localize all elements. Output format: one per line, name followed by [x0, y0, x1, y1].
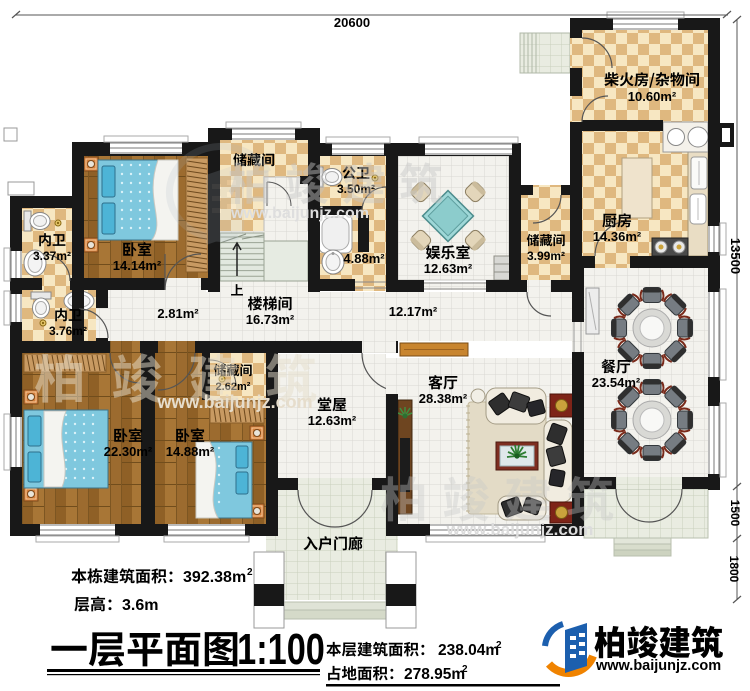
svg-text:23.54m²: 23.54m²: [592, 375, 641, 390]
svg-text:1500: 1500: [728, 500, 742, 527]
svg-text:14.14m²: 14.14m²: [113, 258, 162, 273]
svg-text:1800: 1800: [727, 556, 741, 583]
svg-text:3.6m: 3.6m: [122, 597, 158, 614]
svg-text:238.04m: 238.04m: [438, 642, 499, 659]
svg-text:www.baijunjz.com: www.baijunjz.com: [446, 520, 594, 539]
svg-text:12.63m²: 12.63m²: [308, 413, 357, 428]
svg-text:1:100: 1:100: [237, 625, 325, 674]
svg-text:www.baijunjz.com: www.baijunjz.com: [595, 658, 721, 674]
svg-text:22.30m²: 22.30m²: [104, 444, 153, 459]
svg-text:3.37m²: 3.37m²: [33, 249, 71, 263]
svg-text:3.99m²: 3.99m²: [527, 249, 565, 263]
svg-text:2.81m²: 2.81m²: [157, 306, 199, 321]
svg-text:12.17m²: 12.17m²: [389, 304, 438, 319]
svg-text:13500: 13500: [728, 238, 743, 274]
svg-text:10.60m²: 10.60m²: [628, 89, 677, 104]
svg-text:14.88m²: 14.88m²: [166, 444, 215, 459]
svg-text:16.73m²: 16.73m²: [246, 312, 295, 327]
svg-text:www.baijunjz.com: www.baijunjz.com: [156, 392, 312, 412]
svg-text:2: 2: [496, 640, 502, 651]
svg-text:20600: 20600: [334, 15, 370, 30]
svg-text:392.38m: 392.38m: [183, 569, 246, 586]
svg-text:4.88m²: 4.88m²: [343, 251, 385, 266]
svg-text:12.63m²: 12.63m²: [424, 261, 473, 276]
svg-text:28.38m²: 28.38m²: [419, 391, 468, 406]
svg-text:3.76m²: 3.76m²: [49, 324, 87, 338]
svg-text:www.baijunjz.com: www.baijunjz.com: [230, 205, 369, 222]
svg-text:14.36m²: 14.36m²: [593, 229, 642, 244]
svg-text:2: 2: [462, 664, 468, 675]
svg-text:278.95m: 278.95m: [404, 666, 465, 683]
svg-text:2: 2: [247, 567, 253, 578]
